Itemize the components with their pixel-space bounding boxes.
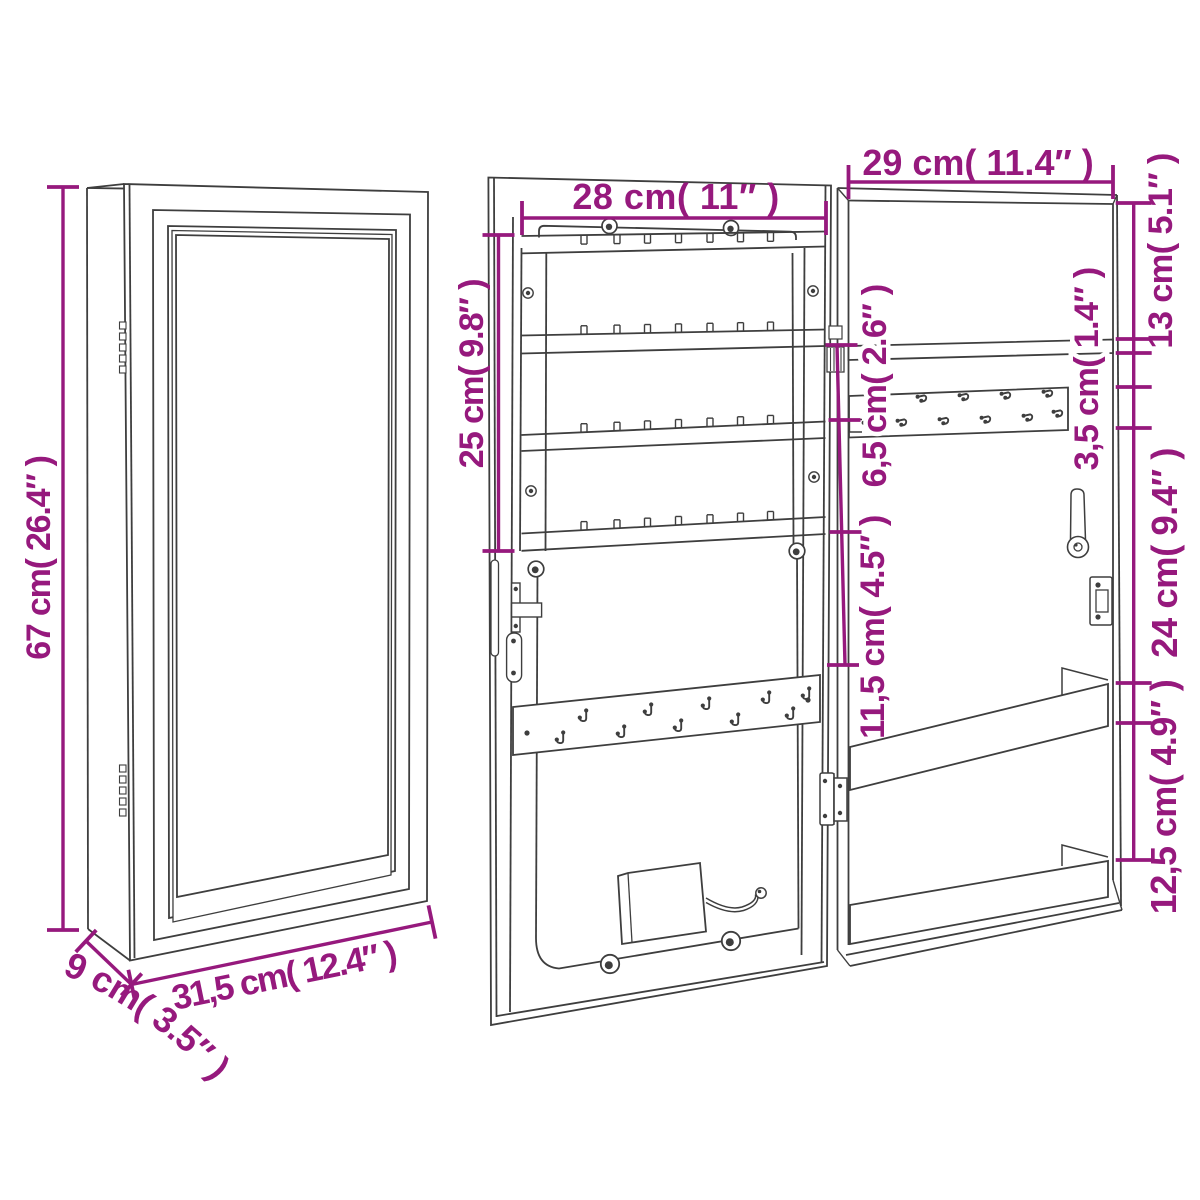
svg-text:67 cm( 26.4″ ): 67 cm( 26.4″ ) — [20, 456, 58, 660]
svg-text:13 cm( 5.1″ ): 13 cm( 5.1″ ) — [1142, 153, 1180, 348]
svg-text:12,5 cm( 4.9″ ): 12,5 cm( 4.9″ ) — [1143, 680, 1184, 914]
svg-text:28 cm( 11″ ): 28 cm( 11″ ) — [572, 176, 779, 217]
svg-text:24 cm( 9.4″ ): 24 cm( 9.4″ ) — [1144, 448, 1185, 658]
svg-text:3,5 cm( 1.4″ ): 3,5 cm( 1.4″ ) — [1068, 268, 1106, 471]
svg-text:25 cm( 9.8″ ): 25 cm( 9.8″ ) — [453, 280, 491, 469]
svg-text:6,5 cm( 2.6″ ): 6,5 cm( 2.6″ ) — [856, 285, 894, 488]
svg-text:29 cm( 11.4″ ): 29 cm( 11.4″ ) — [862, 142, 1093, 183]
svg-text:11,5 cm( 4.5″ ): 11,5 cm( 4.5″ ) — [854, 515, 892, 739]
